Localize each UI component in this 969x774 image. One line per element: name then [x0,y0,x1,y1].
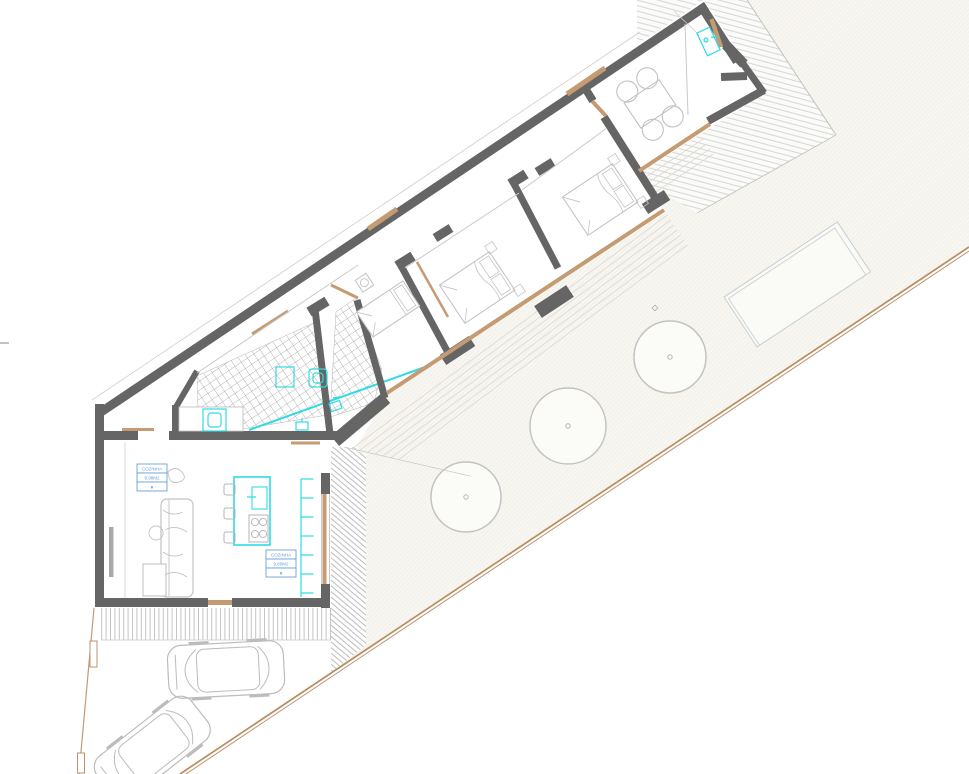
svg-text:9.80M2: 9.80M2 [273,562,289,567]
svg-text:COZINHA: COZINHA [142,467,162,472]
svg-text:▼: ▼ [150,485,154,490]
svg-text:▼: ▼ [279,571,283,576]
svg-text:COZINHA: COZINHA [271,553,291,558]
svg-text:8.98M2: 8.98M2 [144,476,160,481]
